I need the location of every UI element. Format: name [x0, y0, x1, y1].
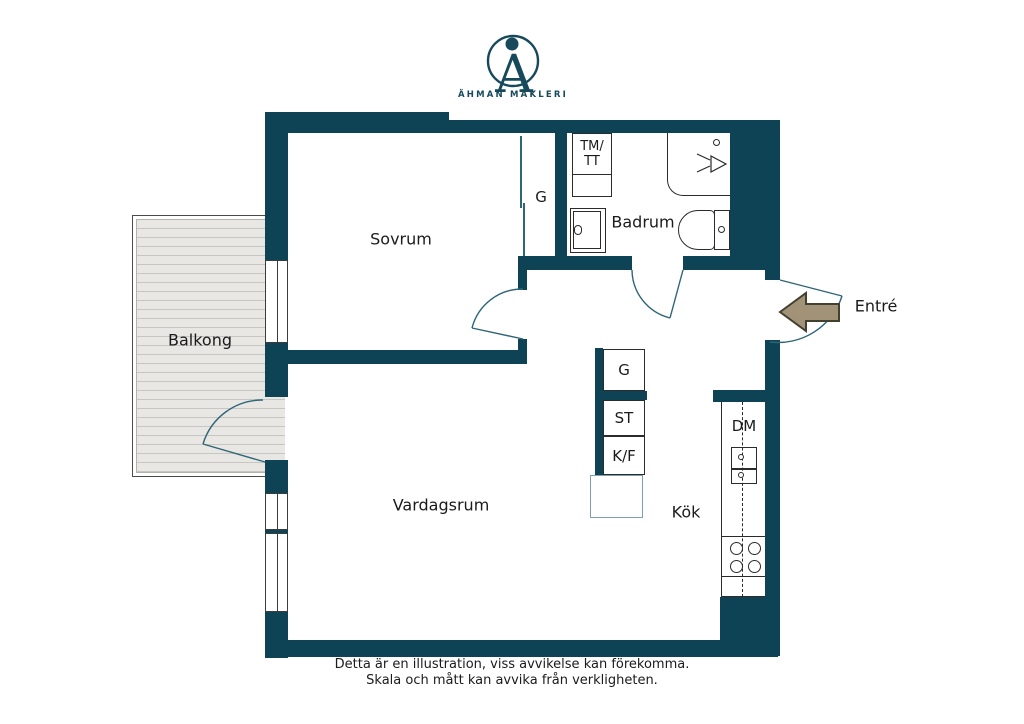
washbasin-handle: [574, 225, 582, 235]
sink-drain: [738, 472, 744, 478]
washbasin: [570, 208, 606, 253]
toilet-flush-button: [718, 226, 725, 233]
kitchen-st-label: ST: [615, 409, 634, 427]
wall: [595, 391, 647, 400]
wall: [730, 120, 780, 270]
window: [265, 260, 288, 343]
toilet-bowl: [678, 210, 715, 250]
kitchen-cabinet-plain: [590, 475, 643, 518]
sliding-door: [520, 136, 522, 208]
sink-bowl-lower: [731, 469, 757, 484]
disclaimer-line-2: Skala och mått kan avvika från verklighe…: [0, 673, 1024, 689]
window: [265, 493, 288, 530]
washer-dryer-box: TM/TT: [572, 133, 612, 175]
kitchen-cabinet-st: ST: [603, 400, 645, 436]
disclaimer: Detta är en illustration, viss avvikelse…: [0, 657, 1024, 689]
door-arc-bathroom: [632, 270, 670, 318]
wall: [265, 112, 288, 260]
room-label-entre: Entré: [855, 297, 898, 316]
wall: [683, 256, 765, 270]
wall: [287, 350, 527, 364]
disclaimer-line-1: Detta är en illustration, viss avvikelse…: [0, 657, 1024, 673]
floor-plan: A ÄHMAN MÄKLERI TM/TT G ST: [0, 0, 1024, 724]
stove-burner: [730, 560, 743, 573]
dishwasher-dm-label: DM: [732, 417, 757, 435]
wall: [265, 112, 449, 133]
stove-burner: [748, 542, 761, 555]
kitchen-kf-label: K/F: [612, 447, 636, 465]
brand-name: ÄHMAN MÄKLERI: [393, 90, 633, 100]
wall: [518, 270, 527, 290]
stove-burner: [748, 560, 761, 573]
window-pane-line: [277, 534, 278, 611]
closet-g-label: G: [535, 188, 547, 206]
stove-edge-line: [721, 576, 765, 577]
sink-bowl-upper: [731, 447, 757, 469]
window: [265, 533, 288, 612]
wall: [518, 256, 632, 270]
door-arc-bedroom: [472, 289, 523, 328]
shower: [667, 133, 730, 196]
window-pane-line: [277, 494, 278, 529]
wall: [265, 460, 288, 493]
room-label-vardagsrum: Vardagsrum: [393, 496, 490, 515]
bathroom-bench: [572, 174, 612, 197]
stove-edge-line: [721, 536, 765, 537]
door-arc-entry: [770, 296, 842, 343]
room-label-kok: Kök: [672, 503, 701, 522]
wall: [595, 348, 603, 475]
washer-dryer-label: TM/TT: [580, 139, 604, 169]
room-label-balkong: Balkong: [168, 331, 232, 350]
sink-drain: [738, 454, 744, 460]
wall: [555, 133, 567, 258]
wall: [765, 270, 780, 280]
door-leaf-bathroom: [670, 270, 683, 318]
window-pane-line: [277, 261, 278, 342]
door-leaf-entry: [780, 280, 842, 296]
shower-drain: [713, 139, 720, 146]
wall: [720, 597, 780, 656]
kitchen-cabinet-kf: K/F: [603, 436, 645, 475]
room-label-badrum: Badrum: [611, 213, 674, 232]
wall: [713, 390, 765, 402]
sliding-door: [523, 203, 525, 259]
kitchen-cabinet-g: G: [603, 349, 645, 391]
entry-arrow-icon: [780, 293, 839, 331]
wall: [765, 340, 780, 597]
wall: [265, 343, 288, 397]
door-leaf-bedroom: [472, 328, 523, 339]
stove-burner: [730, 542, 743, 555]
kitchen-g-label: G: [618, 361, 630, 379]
wall: [265, 640, 778, 657]
room-label-sovrum: Sovrum: [370, 230, 432, 249]
